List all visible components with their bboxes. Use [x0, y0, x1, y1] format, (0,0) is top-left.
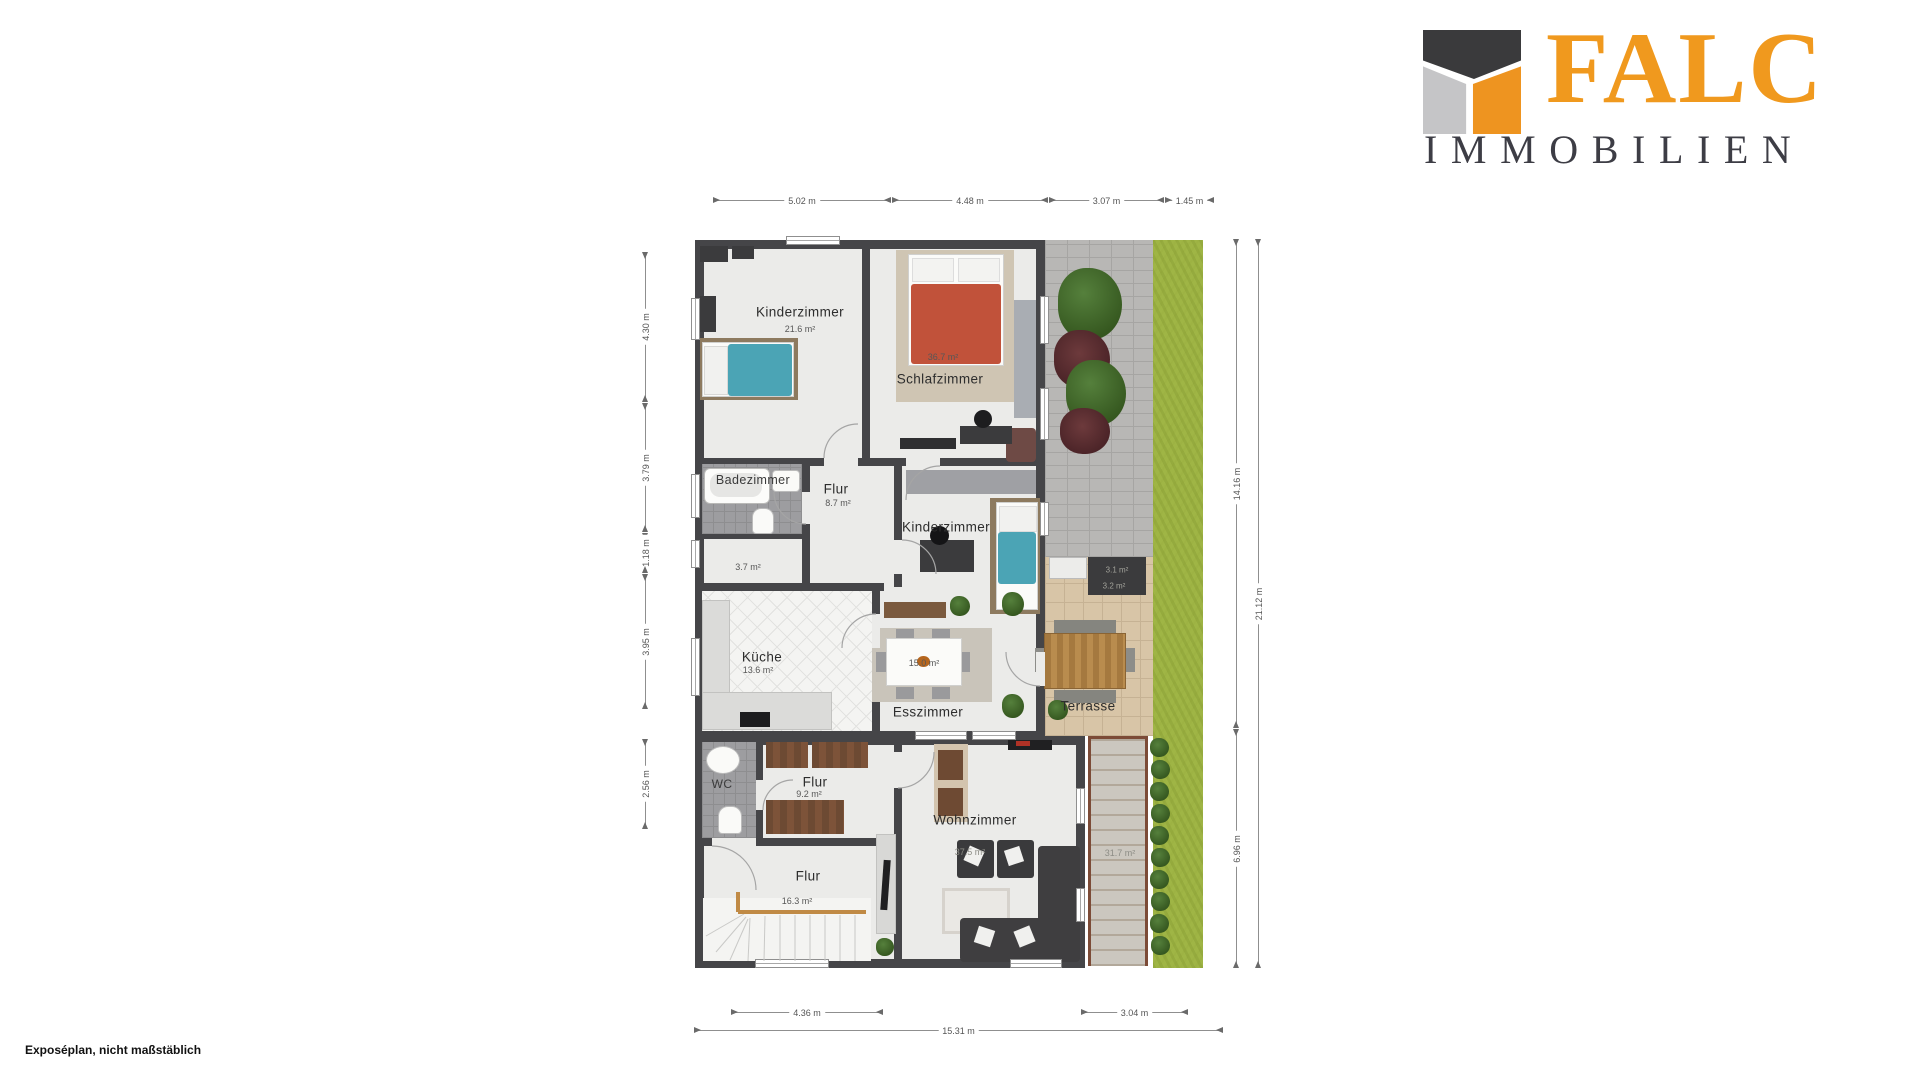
area-label-flur-2: 9.2 m² [796, 789, 822, 799]
hedge-bush [1151, 936, 1170, 955]
room-label-kinderzimmer-1: Kinderzimmer [756, 305, 844, 320]
window [786, 236, 840, 245]
window [691, 474, 700, 518]
dim-right-outer: 21.12 m [1258, 240, 1259, 967]
wall [862, 246, 870, 462]
room-label-esszimmer: Esszimmer [893, 705, 963, 720]
dim-right-inner-1: 14.16 m [1236, 240, 1237, 727]
terrace-bench [1054, 620, 1116, 633]
dim-left-2: 3.79 m [645, 404, 646, 531]
door-gap [872, 614, 880, 648]
cabinet [700, 246, 728, 262]
window [1076, 788, 1085, 824]
shoe-cabinet [766, 800, 844, 834]
bed-pillow [704, 346, 728, 395]
window [755, 959, 829, 968]
wall [701, 583, 884, 591]
room-label-flur-1: Flur [824, 482, 849, 497]
toilet [752, 508, 774, 534]
window [691, 298, 700, 340]
bed-pillow [912, 258, 954, 282]
hedge-bush [1150, 826, 1169, 845]
area-label-kueche: 13.6 m² [743, 665, 774, 675]
hedge-bush [1151, 804, 1170, 823]
hedge-bush [1151, 892, 1170, 911]
cabinet [732, 246, 754, 259]
shrub [1060, 408, 1110, 454]
dim-left-1: 4.30 m [645, 253, 646, 401]
brand-subtitle: IMMOBILIEN [1424, 130, 1804, 170]
room-label-flur-2: Flur [803, 775, 828, 790]
scale-disclaimer: Exposéplan, nicht maßstäblich [25, 1043, 201, 1057]
wardrobe [1014, 300, 1036, 418]
desk-chair [974, 410, 992, 428]
hedge-bush [1150, 738, 1169, 757]
desk [920, 540, 974, 572]
area-label-flur-3: 16.3 m² [782, 896, 813, 906]
tv-accent [1016, 741, 1030, 746]
area-label-flur-1: 8.7 m² [825, 498, 851, 508]
wc-sink [706, 746, 740, 774]
area-label-aussenbereich: 31.7 m² [1105, 848, 1136, 858]
tv-board [1008, 740, 1052, 750]
room-label-flur-3: Flur [796, 869, 821, 884]
window [1040, 502, 1049, 536]
area-label-esszimmer: 15.0 m² [909, 658, 940, 668]
bed-pillow [958, 258, 1000, 282]
area-label-storage-bottom: 3.2 m² [1103, 582, 1126, 591]
area-label-schlafzimmer: 36.7 m² [928, 352, 959, 362]
room-label-wohnzimmer: Wohnzimmer [933, 813, 1016, 828]
door-gap [712, 838, 756, 846]
door-gap [756, 780, 763, 810]
door-gap [802, 492, 810, 524]
falc-logo-icon [1423, 30, 1521, 134]
dim-right-inner-2: 6.96 m [1236, 730, 1237, 967]
wall [802, 462, 810, 588]
cabinet [700, 296, 716, 332]
dining-chair [896, 687, 914, 699]
window [1010, 959, 1062, 968]
stove [740, 712, 770, 727]
shrub [1058, 268, 1122, 340]
door-gap [906, 458, 940, 466]
room-label-badezimmer: Badezimmer [716, 473, 790, 487]
door-gap [824, 458, 858, 466]
indoor-stairs [703, 898, 871, 961]
dim-bottom-1: 4.36 m [732, 1012, 882, 1013]
desk [960, 426, 1012, 444]
coffee-table [938, 750, 963, 780]
window [691, 540, 700, 568]
hedge-bush [1150, 782, 1169, 801]
dim-top-4: 1.45 m [1166, 200, 1213, 201]
hedge-bush [1151, 848, 1170, 867]
potted-plant [950, 596, 970, 616]
hedge-bush [1150, 870, 1169, 889]
room-label-kinderzimmer-2: Kinderzimmer [902, 520, 990, 535]
door-gap [894, 540, 902, 574]
hall-wardrobe [812, 742, 868, 768]
potted-plant [1002, 694, 1024, 718]
wardrobe [906, 470, 1036, 494]
sideboard [900, 438, 956, 449]
window [1040, 296, 1049, 344]
dim-top-2: 4.48 m [893, 200, 1047, 201]
dim-bottom-total: 15.31 m [695, 1030, 1222, 1031]
area-label-storage-top: 3.1 m² [1106, 566, 1129, 575]
bed-blanket-teal [728, 344, 792, 396]
terrace-table [1044, 633, 1126, 689]
room-label-wc: WC [712, 777, 733, 791]
toilet [718, 806, 742, 834]
window [972, 731, 1016, 740]
door-gap [894, 752, 902, 788]
hedge-bush [1151, 760, 1170, 779]
potted-plant [876, 938, 894, 956]
door-gap [1036, 652, 1045, 686]
window [691, 638, 700, 696]
dim-left-4: 3.95 m [645, 575, 646, 708]
area-label-kinderzimmer-1: 21.6 m² [785, 324, 816, 334]
hedge-bush [1150, 914, 1169, 933]
dim-left-5: 2.56 m [645, 740, 646, 828]
room-label-terrasse: Terrasse [1061, 699, 1116, 714]
exposé-page: FALC IMMOBILIEN [0, 0, 1920, 1080]
window [1076, 888, 1085, 922]
room-label-kueche: Küche [742, 650, 782, 665]
potted-plant [1002, 592, 1024, 616]
bed-pillow [999, 506, 1037, 532]
window [915, 731, 967, 740]
dim-top-3: 3.07 m [1050, 200, 1163, 201]
sideboard [884, 602, 946, 618]
terrace-shelf [1049, 557, 1087, 579]
dining-chair [932, 687, 950, 699]
dim-bottom-2: 3.04 m [1082, 1012, 1187, 1013]
room-label-schlafzimmer: Schlafzimmer [897, 372, 984, 387]
window [1040, 388, 1049, 440]
dim-left-3: 1.18 m [645, 534, 646, 572]
area-label-wohnzimmer: 37.5 m² [955, 847, 986, 857]
brand-name: FALC [1546, 18, 1824, 120]
area-label-abstellraum: 3.7 m² [735, 562, 761, 572]
hall-wardrobe [766, 742, 808, 768]
bed-blanket-teal [998, 532, 1036, 584]
dim-top-1: 5.02 m [714, 200, 890, 201]
kitchen-counter [702, 600, 730, 694]
